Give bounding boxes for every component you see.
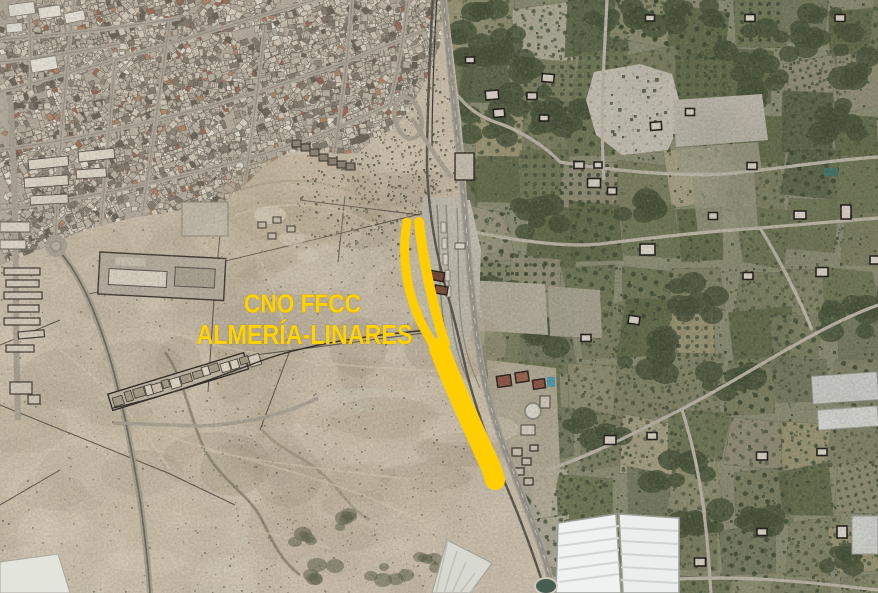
svg-text:ALMERÍA-LINARES: ALMERÍA-LINARES bbox=[197, 319, 413, 350]
svg-text:CNO FFCC: CNO FFCC bbox=[244, 291, 361, 319]
